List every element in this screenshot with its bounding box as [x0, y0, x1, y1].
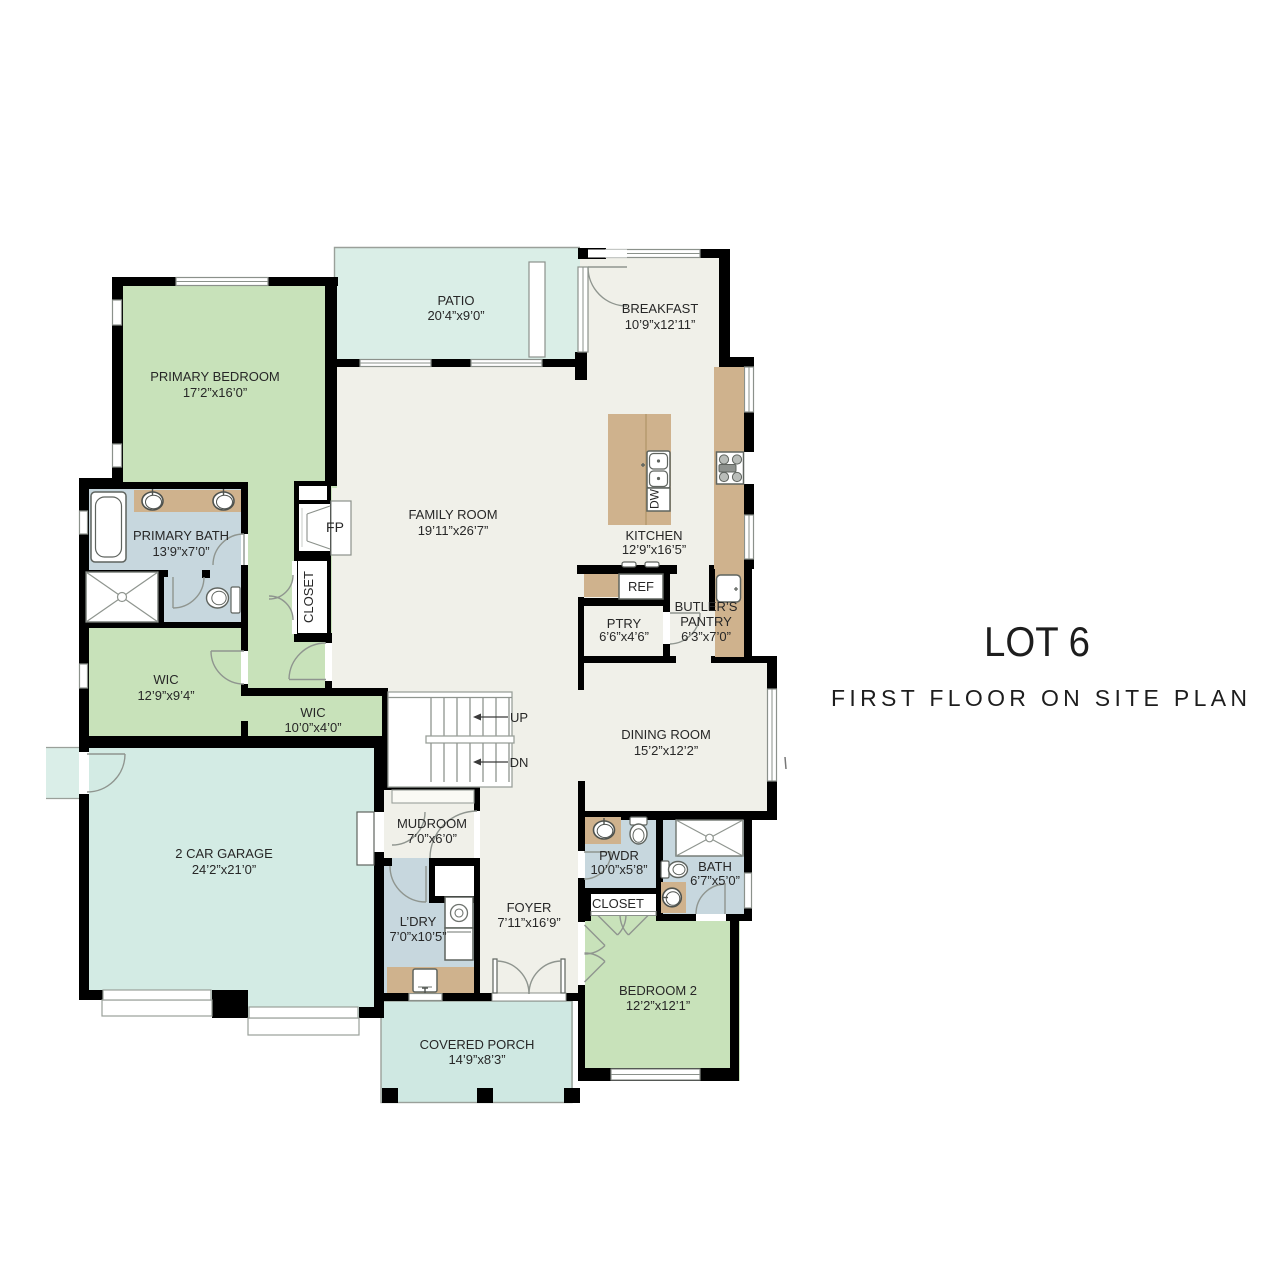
svg-text:PATIO: PATIO: [437, 293, 474, 308]
svg-text:10’0”x4’0”: 10’0”x4’0”: [284, 720, 341, 735]
svg-text:12’2”x12’1”: 12’2”x12’1”: [626, 998, 690, 1013]
svg-text:FAMILY ROOM: FAMILY ROOM: [408, 507, 497, 522]
svg-text:FOYER: FOYER: [507, 900, 552, 915]
svg-text:BREAKFAST: BREAKFAST: [622, 301, 699, 316]
svg-text:6’6”x4’6”: 6’6”x4’6”: [599, 629, 649, 644]
svg-text:BATH: BATH: [698, 859, 732, 874]
svg-text:7’11”x16’9”: 7’11”x16’9”: [497, 915, 560, 930]
svg-text:13’9”x7’0”: 13’9”x7’0”: [152, 544, 209, 559]
svg-text:19’11”x26’7”: 19’11”x26’7”: [418, 523, 489, 538]
svg-text:DW: DW: [648, 488, 662, 509]
svg-text:WIC: WIC: [300, 705, 325, 720]
svg-text:PWDR: PWDR: [599, 848, 639, 863]
svg-text:CLOSET: CLOSET: [592, 896, 644, 911]
svg-text:24’2”x21’0”: 24’2”x21’0”: [192, 862, 256, 877]
svg-text:COVERED PORCH: COVERED PORCH: [420, 1037, 535, 1052]
svg-text:MUDROOM: MUDROOM: [397, 816, 467, 831]
svg-text:WIC: WIC: [153, 672, 178, 687]
svg-text:10’9”x12’11”: 10’9”x12’11”: [625, 317, 696, 332]
svg-text:L’DRY: L’DRY: [400, 914, 437, 929]
svg-text:PRIMARY BEDROOM: PRIMARY BEDROOM: [150, 369, 280, 384]
svg-text:DN: DN: [510, 755, 529, 770]
svg-text:7’0”x6’0”: 7’0”x6’0”: [407, 831, 457, 846]
svg-text:6’3”x7’0”: 6’3”x7’0”: [681, 629, 731, 644]
svg-text:KITCHEN: KITCHEN: [625, 528, 682, 543]
svg-text:FP: FP: [326, 519, 344, 535]
svg-text:BEDROOM 2: BEDROOM 2: [619, 983, 697, 998]
svg-text:PANTRY: PANTRY: [680, 614, 732, 629]
svg-text:7’0”x10’5”: 7’0”x10’5”: [389, 929, 446, 944]
svg-text:15’2”x12’2”: 15’2”x12’2”: [634, 743, 698, 758]
svg-text:BUTLER’S: BUTLER’S: [675, 599, 738, 614]
svg-text:20’4”x9’0”: 20’4”x9’0”: [427, 308, 484, 323]
svg-text:PRIMARY BATH: PRIMARY BATH: [133, 528, 229, 543]
svg-text:LOT 6: LOT 6: [984, 618, 1090, 665]
svg-text:12’9”x9’4”: 12’9”x9’4”: [137, 688, 194, 703]
svg-text:CLOSET: CLOSET: [301, 571, 316, 623]
svg-text:6’7”x5’0”: 6’7”x5’0”: [690, 873, 740, 888]
svg-text:DINING ROOM: DINING ROOM: [621, 727, 711, 742]
svg-text:12’9”x16’5”: 12’9”x16’5”: [622, 542, 686, 557]
svg-text:UP: UP: [510, 710, 528, 725]
svg-text:2 CAR GARAGE: 2 CAR GARAGE: [175, 846, 273, 861]
svg-text:17’2”x16’0”: 17’2”x16’0”: [183, 385, 247, 400]
svg-text:14’9”x8’3”: 14’9”x8’3”: [448, 1052, 505, 1067]
svg-text:REF: REF: [628, 579, 654, 594]
svg-text:10’0”x5’8”: 10’0”x5’8”: [590, 862, 647, 877]
